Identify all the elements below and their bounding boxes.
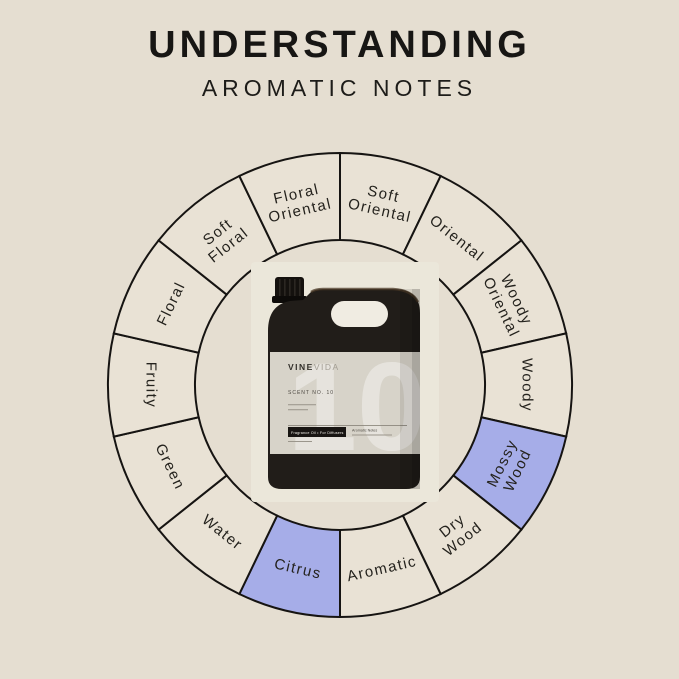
bottle-shading-deep [412, 289, 420, 489]
product-photo: 10 VINEVIDA SCENT NO. 10 Fragrance Oil •… [251, 262, 439, 502]
label-notes-bar [352, 435, 392, 436]
label-footer-bar [288, 441, 312, 442]
header: UNDERSTANDING AROMATIC NOTES [0, 0, 679, 100]
label-notes-text: Aromatic Notes [352, 429, 377, 433]
aromatic-notes-wheel-graphic: SoftOrientalOrientalWoodyOrientalWoodyMo… [0, 0, 679, 679]
page-title: UNDERSTANDING [0, 26, 679, 64]
page-subtitle: AROMATIC NOTES [0, 77, 679, 100]
wheel-label-woody: Woody [519, 358, 536, 412]
scent-number-label: SCENT NO. 10 [288, 390, 334, 396]
label-badge-text: Fragrance Oil • For Diffusers [291, 431, 344, 435]
brand-name-bold: VINE [288, 362, 314, 372]
brand-name-light: VIDA [314, 362, 340, 372]
wheel-label-fruity: Fruity [143, 362, 160, 409]
brand-name: VINEVIDA [288, 362, 340, 372]
label-divider [288, 425, 407, 426]
bottle-handle-hole [331, 301, 388, 327]
